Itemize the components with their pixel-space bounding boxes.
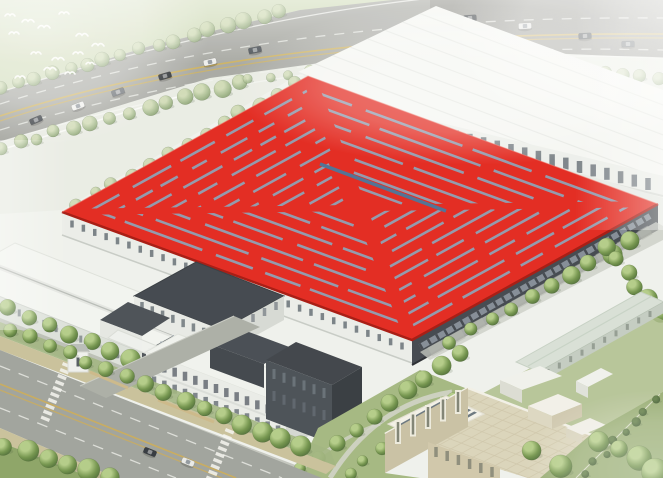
warm-overlay <box>0 0 663 478</box>
aerial-rendering-factory-campus <box>0 0 663 478</box>
scene-svg <box>0 0 663 478</box>
